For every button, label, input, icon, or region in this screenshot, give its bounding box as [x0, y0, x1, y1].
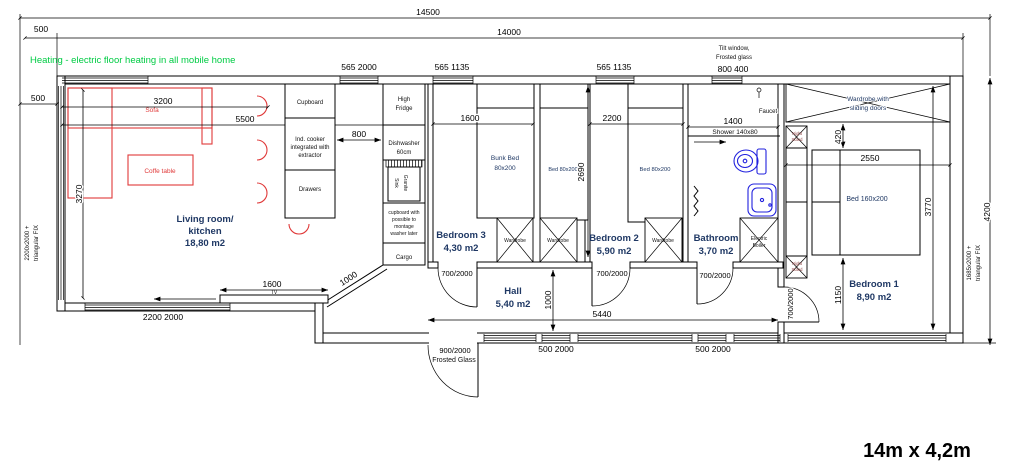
bar-stool-1 — [257, 96, 267, 116]
bar-stool-3 — [257, 183, 267, 203]
dim-bedroom1-depth: 3770 — [923, 197, 933, 216]
dim-top-left-offset: 500 — [34, 24, 48, 34]
dim-overall-right: 4200 — [982, 202, 992, 221]
toilet-icon — [734, 149, 766, 174]
window-bottom-bath-label: 500 2000 — [695, 344, 731, 354]
sink-hatch — [386, 160, 422, 167]
living-room-label-3: 18,80 m2 — [185, 238, 225, 249]
bedroom3-area: 4,30 m2 — [444, 243, 479, 254]
bar-stool-4 — [289, 224, 309, 234]
dim-overall-top: 14500 — [416, 7, 440, 17]
bedroom3-door-label: 700/2000 — [441, 269, 472, 278]
cooker-label-3: extractor — [298, 153, 321, 159]
living-room-label-1: Living room/ — [177, 214, 234, 225]
dim-bed1-offset: 1150 — [833, 286, 843, 305]
night-stand-2-label-2: Stand — [792, 267, 804, 272]
bedroom3-label: Bedroom 3 — [436, 230, 486, 241]
cooker-label-1: Ind. cooker — [295, 137, 325, 143]
cooker-label-2: integrated with — [290, 145, 329, 151]
dim-bedroom2-width: 2200 — [603, 113, 622, 123]
window-left-spec-line1: 2200x2000 + — [25, 225, 31, 260]
right-dimension: 4200 — [963, 78, 996, 345]
bed2-label: Bed 80x200 — [640, 167, 671, 173]
bathroom-door-label: 700/2000 — [699, 271, 730, 280]
wardrobe-3-label: Wardrobe — [652, 238, 674, 244]
dim-wardrobe-gap: 420 — [833, 130, 843, 144]
dim-bathroom-width: 1400 — [724, 116, 743, 126]
living-room-dimensions: 3200 5500 3270 — [62, 90, 416, 298]
tv-label: TV — [271, 290, 278, 296]
bedroom1-area: 8,90 m2 — [857, 292, 892, 303]
dim-beds-depth: 2690 — [576, 162, 586, 181]
wall-bathroom-bedroom1-upper — [778, 84, 784, 287]
boiler-label-1: Electric — [751, 236, 768, 242]
towel-radiator — [694, 186, 698, 216]
dim-living-depth: 3270 — [74, 184, 84, 203]
window-right-spec-line2: triangular FIX — [976, 245, 982, 281]
wall-bathroom-bedroom1-lower — [778, 322, 784, 343]
dim-tv-width: 1600 — [263, 279, 282, 289]
window-top2-label: 565 1135 — [435, 62, 470, 72]
bedroom2-area: 5,90 m2 — [597, 246, 632, 257]
window-right-spec-line1: 1685x2000 + — [967, 245, 973, 280]
hall-wall-seg2 — [477, 262, 592, 268]
bedroom2-label: Bedroom 2 — [589, 233, 639, 244]
shower-label: Shower 140x80 — [712, 129, 758, 136]
sink-icon — [748, 184, 776, 216]
dim-sofa-width: 3200 — [154, 96, 173, 106]
night-stand-2-label-1: Night — [792, 261, 803, 266]
sofa-armrest — [202, 88, 212, 144]
wardrobe-sliding-label-1: Wardrobe with — [847, 96, 889, 103]
bed3 — [540, 84, 588, 220]
bed1-label: Bed 160x200 — [846, 196, 887, 203]
dishwasher-label-1: Dishwasher — [388, 141, 419, 147]
bedroom1-door-label: 700/2000 — [786, 288, 795, 319]
window-bottom-hall-label: 500 2000 — [538, 344, 574, 354]
step-wall — [315, 303, 323, 343]
dim-hall-width: 5440 — [593, 309, 612, 319]
wall-bedroom2-bathroom — [683, 84, 688, 268]
dim-bed1-width: 2550 — [861, 153, 880, 163]
dim-counter-gap: 800 — [352, 129, 366, 139]
plan-title: 14m x 4,2m — [863, 440, 971, 462]
fridge-label-2: Fridge — [395, 106, 413, 112]
bunk-bed — [477, 84, 534, 218]
bar-stool-2 — [257, 140, 267, 160]
fridge-label-1: High — [398, 97, 410, 103]
sink-label-1: Granite — [402, 175, 408, 192]
cargo-label: Cargo — [396, 255, 413, 261]
dim-bedroom3-width: 1600 — [461, 113, 480, 123]
dim-inner-top: 14000 — [497, 27, 521, 37]
floor-plan-canvas: 14500 14000 500 Heating - electric floor… — [0, 0, 1024, 470]
sofa — [68, 88, 212, 128]
night-stand-1-label-2: Stand — [792, 137, 804, 142]
entrance-door-label-2: Frosted Glass — [432, 357, 476, 364]
window-left-spec-line2: triangular FIX — [34, 225, 40, 261]
hall-label: Hall — [504, 286, 521, 297]
bed2 — [628, 84, 683, 222]
entrance-opening — [429, 333, 477, 344]
bedroom2-door-label: 700/2000 — [596, 269, 627, 278]
hall-wall-seg4 — [733, 262, 783, 268]
right-wall — [950, 76, 963, 343]
living-room-label-2: kitchen — [188, 226, 221, 237]
heating-note: Heating - electric floor heating in all … — [30, 55, 235, 66]
floor-plan-svg: 14500 14000 500 Heating - electric floor… — [0, 0, 1024, 470]
tilt-window-note-line2: Frosted glass — [716, 55, 752, 61]
bunk-bed-label-1: Bunk Bed — [491, 155, 520, 162]
dim-left-wall-offset: 500 — [31, 93, 45, 103]
coffee-table-label: Coffe table — [144, 168, 176, 175]
dim-hall-depth: 1000 — [543, 290, 553, 309]
washer-note-1: cupboard with — [388, 210, 419, 216]
sofa-chaise — [68, 88, 112, 198]
window-top4-label: 800 400 — [718, 64, 749, 74]
tilt-window-note-line1: Tilt window, — [719, 46, 750, 52]
sink-label-2: Sink — [393, 178, 399, 188]
bathroom-label: Bathroom — [694, 233, 739, 244]
window-top3-label: 565 1135 — [597, 62, 632, 72]
top-wall — [57, 76, 963, 84]
window-top1-label: 565 2000 — [341, 62, 377, 72]
boiler-label-2: Boiler — [753, 243, 766, 249]
hall-area: 5,40 m2 — [496, 299, 531, 310]
bathroom-area: 3,70 m2 — [699, 246, 734, 257]
washer-note-3: montage — [394, 224, 414, 230]
dishwasher-label-2: 60cm — [397, 150, 412, 156]
faucet-label: Faucet — [759, 109, 778, 115]
diagonal-wall — [323, 265, 387, 307]
sofa-label: Sofa — [145, 107, 159, 114]
washer-note-2: possible to — [392, 217, 416, 223]
wardrobe-2-label: Wardrobe — [547, 238, 569, 244]
washer-note-4: washer later — [390, 231, 418, 237]
wardrobe-1-label: Wardrobe — [504, 238, 526, 244]
drawers-label: Drawers — [299, 187, 321, 193]
dim-diagonal: 1000 — [338, 269, 360, 288]
night-stand-1-label-1: Night — [792, 131, 803, 136]
wardrobe-sliding-label-2: sliding doors — [850, 105, 887, 112]
dim-living-width: 5500 — [236, 114, 255, 124]
bedroom1-label: Bedroom 1 — [849, 279, 899, 290]
kitchen: Cupboard Ind. cooker integrated with ext… — [285, 84, 425, 265]
hall-wall-seg3 — [630, 262, 697, 268]
window-bottom-living-label: 2200 2000 — [143, 312, 183, 322]
faucet-icon — [757, 88, 761, 92]
hall-wall-seg1 — [428, 262, 438, 268]
cupboard-label: Cupboard — [297, 100, 323, 106]
bed3-label: Bed 80x200 — [548, 167, 577, 173]
bunk-bed-label-2: 80x200 — [494, 165, 516, 172]
tv-bench — [220, 295, 328, 303]
entrance-door-label-1: 900/2000 — [439, 346, 470, 355]
wall-living-bedroom3 — [428, 84, 433, 268]
